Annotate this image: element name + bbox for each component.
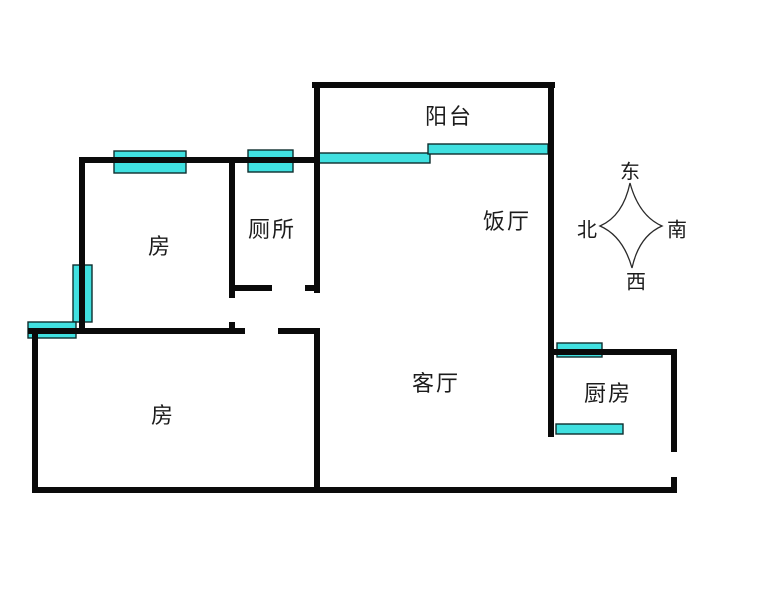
balcony-window-right	[428, 144, 548, 154]
kitchen-inner-window	[556, 424, 623, 434]
compass-label-south: 南	[667, 214, 687, 243]
bedroom-top-left-wall	[79, 157, 85, 334]
bedroom-bottom-left-wall	[32, 328, 38, 493]
kitchen-right-wall-upper	[671, 349, 677, 452]
room-label-dining: 饭厅	[483, 204, 531, 236]
hall-wall-left	[28, 328, 245, 334]
compass-label-north: 北	[577, 214, 597, 243]
north-rooms-wall	[79, 157, 320, 163]
room-label-kitchen: 厨房	[584, 376, 632, 408]
toilet-bottom-wall-right	[305, 285, 320, 291]
room-label-bedroom-bottom: 房	[151, 398, 175, 430]
room-label-bedroom-top: 房	[148, 229, 172, 261]
floor-plan-canvas: 阳台 房 厕所 饭厅 客厅 厨房 房 东 北 南 西	[0, 0, 758, 591]
room-label-balcony: 阳台	[425, 99, 473, 131]
room-label-living: 客厅	[412, 366, 460, 398]
balcony-top-wall	[312, 82, 555, 88]
main-right-wall	[548, 82, 554, 437]
toilet-bottom-wall-left	[229, 285, 272, 291]
bottom-wall	[32, 487, 676, 493]
bedroom-bottom-right-wall	[314, 328, 320, 493]
room-label-toilet: 厕所	[248, 212, 296, 244]
compass-label-east: 东	[620, 156, 640, 185]
kitchen-right-wall-lower	[671, 477, 677, 493]
compass-star-icon	[593, 179, 669, 273]
compass-label-west: 西	[626, 266, 646, 295]
hall-wall-right	[278, 328, 320, 334]
balcony-left-wall	[314, 82, 320, 293]
toilet-left-wall	[229, 157, 235, 298]
kitchen-top-wall	[548, 349, 677, 355]
balcony-window-left	[318, 153, 430, 163]
walls-windows-layer	[0, 0, 758, 591]
